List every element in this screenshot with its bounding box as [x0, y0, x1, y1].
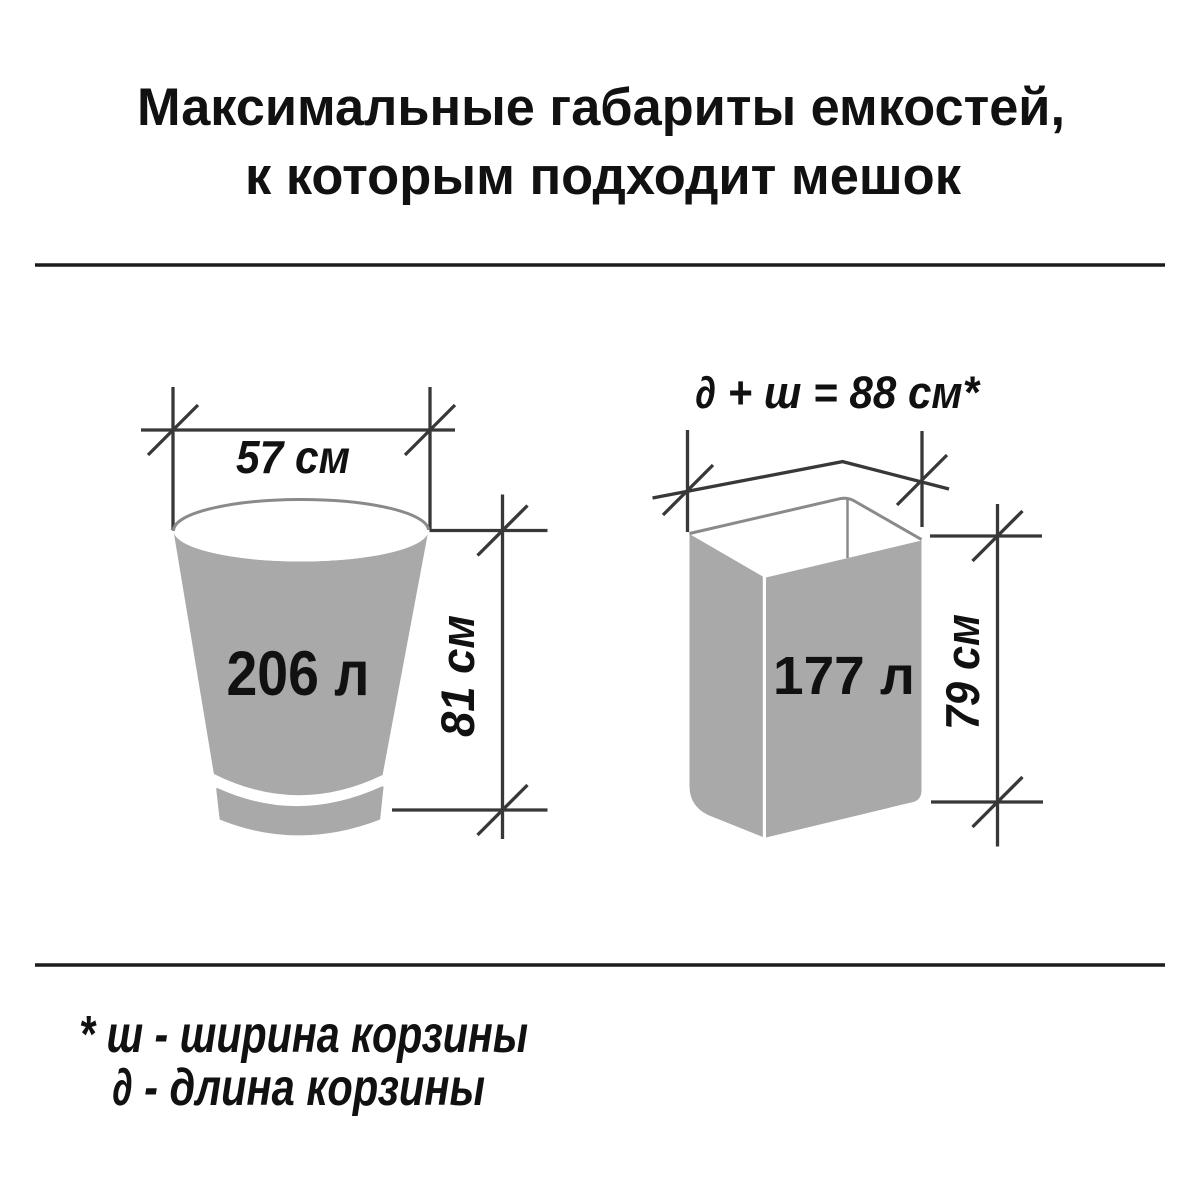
svg-text:Максимальные габариты емкостей: Максимальные габариты емкостей,	[137, 78, 1065, 137]
svg-text:∂ - длина корзины: ∂ - длина корзины	[112, 1059, 485, 1117]
svg-text:79 см: 79 см	[936, 614, 989, 730]
svg-text:* ш - ширина корзины: * ш - ширина корзины	[79, 1006, 528, 1064]
svg-text:57 см: 57 см	[236, 431, 350, 483]
svg-text:к которым подходит мешок: к которым подходит мешок	[245, 147, 961, 206]
svg-text:∂ + ш = 88 см*: ∂ + ш = 88 см*	[695, 367, 981, 418]
svg-text:81 см: 81 см	[431, 615, 484, 737]
svg-text:206 л: 206 л	[227, 639, 370, 709]
svg-text:177 л: 177 л	[773, 646, 915, 706]
